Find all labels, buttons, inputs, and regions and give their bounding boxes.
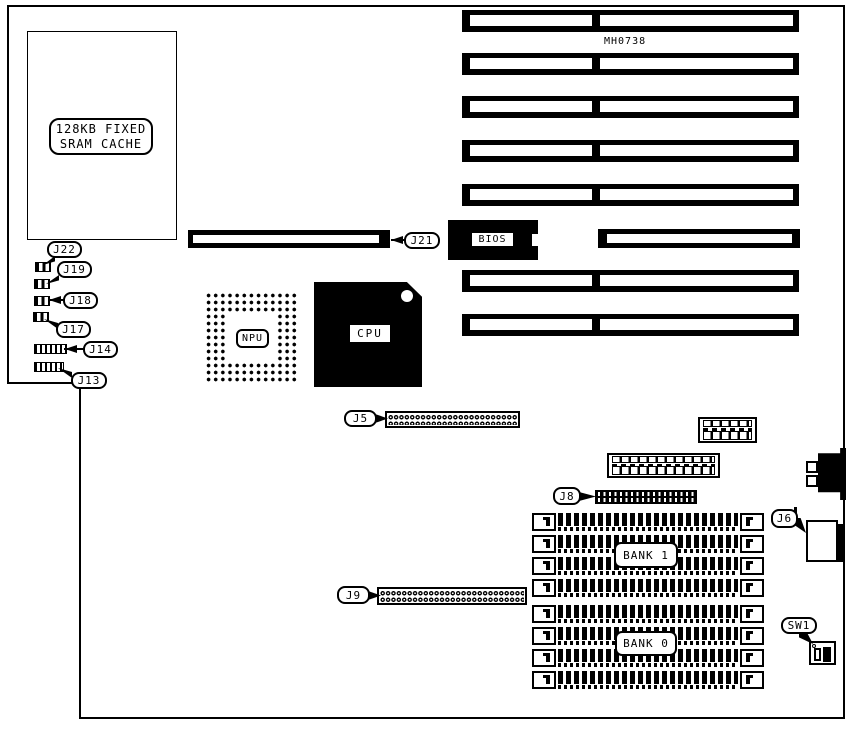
simm-teeth bbox=[558, 571, 738, 575]
slot-window bbox=[600, 319, 793, 330]
callout-j19: J19 bbox=[57, 261, 92, 278]
pin-header-j5 bbox=[385, 411, 520, 428]
cpu-chip-label: CPU bbox=[350, 325, 390, 342]
simm-bracket bbox=[740, 557, 764, 575]
bank0-label: BANK 0 bbox=[615, 631, 677, 656]
power-connector-12pin bbox=[607, 453, 720, 478]
slot-window bbox=[600, 58, 793, 69]
simm-teeth bbox=[558, 593, 738, 597]
bank0-label-text: BANK 0 bbox=[623, 637, 669, 650]
simm-bracket bbox=[532, 627, 556, 645]
isa-slot-1 bbox=[462, 10, 799, 32]
callout-sw1: SW1 bbox=[781, 617, 817, 634]
pin-header-j9 bbox=[377, 587, 527, 605]
slot-window bbox=[607, 234, 792, 243]
sram-cache-label-line2: SRAM CACHE bbox=[60, 137, 142, 152]
callout-j6: J6 bbox=[771, 509, 798, 528]
connector-j22 bbox=[35, 262, 51, 272]
slot-window bbox=[470, 319, 592, 330]
callout-j14-text: J14 bbox=[89, 344, 112, 355]
simm-socket-bank0-1 bbox=[532, 605, 764, 623]
keyboard-connector-tab bbox=[806, 475, 818, 487]
isa-slot-2 bbox=[462, 53, 799, 75]
callout-j8-text: J8 bbox=[559, 491, 574, 502]
callout-j18-text: J18 bbox=[69, 295, 92, 306]
connector-j19 bbox=[34, 279, 50, 289]
simm-teeth bbox=[558, 663, 738, 667]
slot-window bbox=[470, 15, 592, 26]
simm-bracket bbox=[532, 513, 556, 531]
power-connector-tabs bbox=[612, 456, 715, 463]
isa-slot-5 bbox=[462, 184, 799, 206]
callout-sw1-text: SW1 bbox=[788, 620, 811, 631]
simm-bracket bbox=[740, 535, 764, 553]
slot-window bbox=[470, 189, 592, 200]
callout-j5: J5 bbox=[344, 410, 377, 427]
slot-window bbox=[193, 235, 379, 243]
slot-window bbox=[470, 145, 592, 156]
simm-bracket bbox=[532, 605, 556, 623]
isa-slot-8 bbox=[462, 314, 799, 336]
board-edge-bottom bbox=[79, 717, 845, 719]
callout-j22: J22 bbox=[47, 241, 82, 258]
cpu-pin1-dot bbox=[401, 290, 413, 302]
simm-bracket bbox=[532, 535, 556, 553]
keyboard-connector bbox=[818, 448, 846, 500]
connector-j18 bbox=[34, 296, 50, 306]
callout-j5-text: J5 bbox=[353, 413, 368, 424]
isa-slot-4 bbox=[462, 140, 799, 162]
callout-j17-text: J17 bbox=[62, 324, 85, 335]
bank1-label: BANK 1 bbox=[614, 542, 678, 568]
slot-window bbox=[470, 275, 592, 286]
slot-window bbox=[470, 58, 592, 69]
slot-window bbox=[470, 101, 592, 112]
callout-j13-text: J13 bbox=[78, 375, 101, 386]
motherboard-diagram: 128KB FIXED SRAM CACHE MH0738 J22 J19 J1… bbox=[0, 0, 851, 732]
simm-teeth bbox=[558, 685, 738, 689]
npu-chip-label: NPU bbox=[236, 329, 269, 348]
bios-chip-notch bbox=[532, 234, 541, 246]
callout-j21-pointer bbox=[391, 236, 403, 244]
callout-j8: J8 bbox=[553, 487, 581, 505]
simm-bracket bbox=[740, 671, 764, 689]
npu-chip: NPU bbox=[205, 292, 298, 383]
callout-j18: J18 bbox=[63, 292, 98, 309]
power-connector-6pin bbox=[698, 417, 757, 443]
callout-j13: J13 bbox=[71, 372, 107, 389]
simm-contacts bbox=[558, 579, 738, 592]
callout-j22-text: J22 bbox=[53, 244, 76, 255]
simm-socket-bank0-4 bbox=[532, 671, 764, 689]
simm-teeth bbox=[558, 619, 738, 623]
simm-bracket bbox=[740, 513, 764, 531]
slot-window bbox=[600, 189, 793, 200]
simm-bracket bbox=[532, 579, 556, 597]
keyboard-connector-tab bbox=[806, 461, 818, 473]
connector-j14 bbox=[34, 344, 67, 354]
power-connector-cells bbox=[703, 431, 752, 440]
sw1-slot-filled bbox=[823, 647, 831, 662]
cpu-chip: CPU bbox=[314, 282, 422, 387]
connector-j13 bbox=[34, 362, 64, 372]
callout-j14: J14 bbox=[83, 341, 118, 358]
simm-bracket bbox=[532, 557, 556, 575]
callout-j6-text: J6 bbox=[777, 513, 792, 524]
simm-contacts bbox=[558, 605, 738, 618]
simm-bracket bbox=[740, 627, 764, 645]
simm-bracket bbox=[532, 649, 556, 667]
power-connector-cells bbox=[612, 466, 715, 475]
slot-window bbox=[600, 101, 793, 112]
callout-j9-text: J9 bbox=[346, 590, 361, 601]
callout-j21-text: J21 bbox=[411, 235, 434, 246]
slot-window bbox=[600, 15, 793, 26]
simm-contacts bbox=[558, 513, 738, 526]
board-id-text: MH0738 bbox=[604, 36, 646, 47]
power-connector-tabs bbox=[703, 420, 752, 427]
board-notch-vertical bbox=[79, 382, 81, 719]
callout-j9: J9 bbox=[337, 586, 370, 604]
bios-chip: BIOS bbox=[448, 220, 538, 260]
isa-slot-3 bbox=[462, 96, 799, 118]
bios-chip-label: BIOS bbox=[471, 232, 514, 247]
simm-bracket bbox=[740, 579, 764, 597]
board-notch-horizontal bbox=[7, 382, 81, 384]
callout-j21: J21 bbox=[404, 232, 440, 249]
dip-switch-sw1 bbox=[809, 641, 836, 665]
cache-slot-j21 bbox=[188, 230, 390, 248]
isa-slot-6 bbox=[598, 229, 800, 248]
isa-slot-7 bbox=[462, 270, 799, 292]
callout-j18-pointer bbox=[49, 296, 61, 304]
callout-j8-pointer bbox=[579, 492, 596, 501]
sram-cache-label: 128KB FIXED SRAM CACHE bbox=[49, 118, 153, 155]
simm-contacts bbox=[558, 671, 738, 684]
simm-teeth bbox=[558, 527, 738, 531]
board-edge-right bbox=[843, 5, 845, 719]
pin-header-j8 bbox=[595, 490, 697, 504]
simm-bracket bbox=[532, 671, 556, 689]
board-edge-left bbox=[7, 5, 9, 384]
slot-window bbox=[600, 145, 793, 156]
board-edge-top bbox=[7, 5, 845, 7]
callout-j19-text: J19 bbox=[63, 264, 86, 275]
simm-socket-bank1-4 bbox=[532, 579, 764, 597]
simm-bracket bbox=[740, 649, 764, 667]
sram-cache-label-line1: 128KB FIXED bbox=[56, 122, 146, 137]
j6-connector bbox=[806, 520, 838, 562]
simm-socket-bank1-1 bbox=[532, 513, 764, 531]
sw1-slot-open bbox=[814, 648, 821, 661]
slot-window bbox=[600, 275, 793, 286]
callout-j17: J17 bbox=[56, 321, 91, 338]
simm-bracket bbox=[740, 605, 764, 623]
bank1-label-text: BANK 1 bbox=[623, 549, 669, 562]
